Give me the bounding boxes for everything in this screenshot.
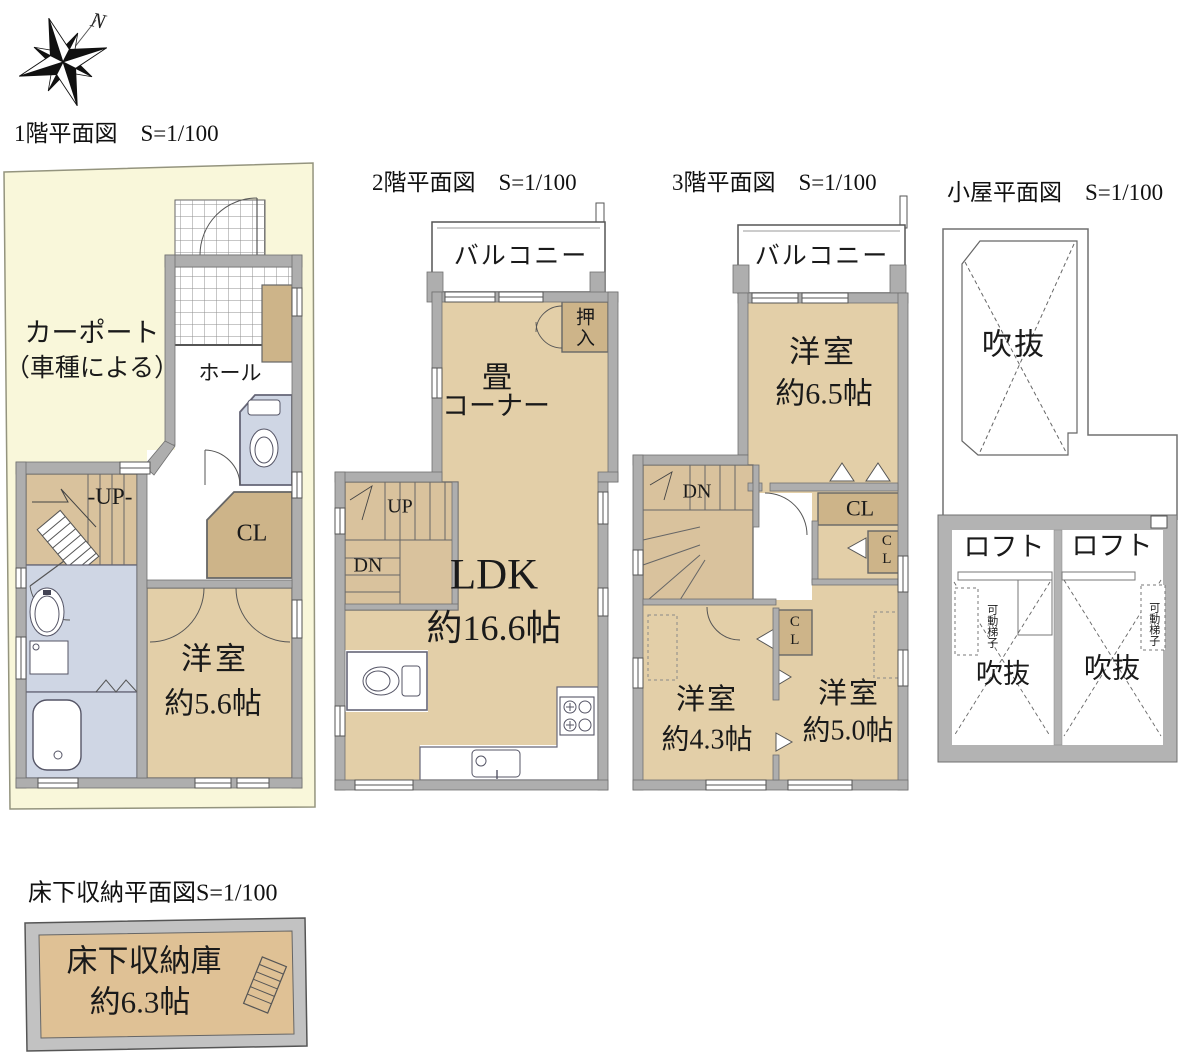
- room43-name: 洋室: [676, 685, 738, 715]
- balcony-label-3f: バルコニー: [755, 244, 890, 270]
- toilet-icon: [255, 437, 273, 463]
- underfloor-title: 床下収納平面図S=1/100: [28, 873, 278, 908]
- oshiire-label: 押入: [573, 307, 593, 349]
- bathroom-1f: [26, 680, 137, 778]
- room56-size: 約5.6帖: [164, 688, 262, 720]
- balcony-label-2f: バルコニー: [454, 244, 589, 270]
- cl-label-1f: CL: [237, 521, 268, 546]
- cl-label-3f-top: CL: [846, 496, 874, 519]
- room56-name: 洋室: [181, 644, 249, 677]
- cl-label-3f-mid: CL: [786, 614, 802, 650]
- room65-name: 洋室: [789, 337, 857, 370]
- floor2-plan: [335, 203, 618, 790]
- hall-label: ホール: [199, 362, 262, 384]
- carport-label-1: カーポート: [25, 319, 160, 347]
- toilet-room-2f: [347, 652, 427, 710]
- void-top-label: 吹抜: [982, 329, 1046, 361]
- bathtub-icon: [33, 700, 81, 770]
- washroom-1f: [26, 561, 137, 692]
- loft-left-label: ロフト: [964, 533, 1045, 561]
- tatami-label-2: コーナー: [442, 392, 550, 420]
- floor-plan-sheet: N 1階平面図 S=1/100 2階平面図 S=1/100 3階平面図 S=1/…: [0, 0, 1200, 1060]
- tatami-label-1: 畳: [482, 362, 512, 394]
- void-right-label: 吹抜: [1084, 654, 1140, 683]
- underfloor-size: 約6.3帖: [90, 987, 191, 1020]
- floor1-plan: [4, 163, 315, 809]
- room-56: [147, 588, 292, 778]
- room50-size: 約5.0帖: [802, 716, 893, 745]
- loft-right-label: ロフト: [1072, 532, 1153, 560]
- room65-size: 約6.5帖: [775, 378, 873, 410]
- sink-icon: [472, 750, 520, 777]
- room50-name: 洋室: [818, 679, 880, 709]
- attic-plan: [938, 229, 1177, 762]
- up-label-2f: UP: [387, 497, 413, 518]
- cl-label-3f-right: CL: [878, 533, 894, 569]
- dn-label-2f: DN: [354, 556, 383, 577]
- ldk-size: 約16.6帖: [426, 610, 561, 648]
- ladder-left-outline: [955, 588, 978, 655]
- ldk-name: LDK: [450, 552, 538, 597]
- ladder-right-label: 可動梯子: [1147, 602, 1159, 646]
- pole-3f: [900, 196, 907, 228]
- shoe-cabinet: [262, 285, 292, 362]
- floor2-title: 2階平面図 S=1/100: [372, 163, 577, 197]
- floor1-title: 1階平面図 S=1/100: [14, 114, 219, 148]
- washing-machine-icon: [30, 641, 68, 674]
- void-left-label: 吹抜: [976, 660, 1030, 688]
- attic-title: 小屋平面図 S=1/100: [947, 173, 1163, 207]
- room43-size: 約4.3帖: [661, 725, 752, 754]
- underfloor-name: 床下収納庫: [67, 946, 222, 979]
- floor3-title: 3階平面図 S=1/100: [672, 163, 877, 197]
- up-label-1f: -UP-: [88, 485, 133, 509]
- dn-label-3f: DN: [683, 482, 712, 503]
- ladder-left-label: 可動梯子: [985, 604, 997, 648]
- carport-label-2: （車種による）: [5, 356, 179, 382]
